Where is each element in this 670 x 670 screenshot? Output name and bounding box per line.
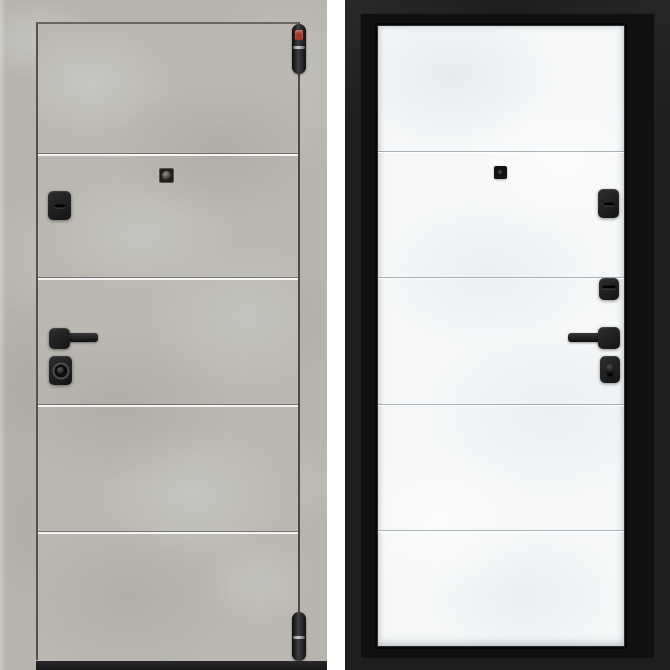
hinge-band: [293, 636, 305, 639]
door-threshold: [36, 661, 327, 670]
thumbturn-lock: [600, 356, 620, 383]
panel-seam: [378, 404, 624, 406]
hinge-band: [293, 46, 305, 49]
product-photo-pair: [0, 0, 670, 670]
hinge-sticker: [295, 30, 303, 40]
lever-handle-rose: [49, 328, 70, 349]
peephole-lens: [498, 170, 502, 174]
peephole: [159, 168, 174, 183]
night-lock-escutcheon: [599, 278, 619, 300]
thumbturn-knob: [607, 363, 614, 376]
bottom-hinge: [292, 612, 306, 661]
peephole-lens: [162, 171, 171, 180]
panel-seam: [38, 404, 298, 407]
casing-edge-highlight: [0, 0, 6, 670]
top-hinge: [292, 24, 306, 74]
peephole: [494, 166, 507, 179]
cylinder-ring: [52, 362, 69, 379]
panel-seam: [38, 531, 298, 534]
night-lock-slot: [603, 286, 616, 289]
keyhole-slot: [55, 204, 65, 207]
panel-seam: [378, 151, 624, 153]
cylinder-lock: [49, 356, 72, 385]
lever-handle-rose: [598, 327, 620, 349]
panel-seam: [38, 153, 298, 156]
exterior-door-photo: [0, 0, 327, 670]
panel-seam: [38, 277, 298, 280]
keyhole-escutcheon: [598, 189, 619, 218]
keyhole-slot: [604, 202, 614, 205]
panel-seam: [378, 277, 624, 279]
interior-door-photo: [345, 0, 670, 670]
panel-seam: [378, 530, 624, 532]
cylinder-knob: [57, 367, 64, 374]
keyhole-escutcheon: [48, 191, 71, 220]
